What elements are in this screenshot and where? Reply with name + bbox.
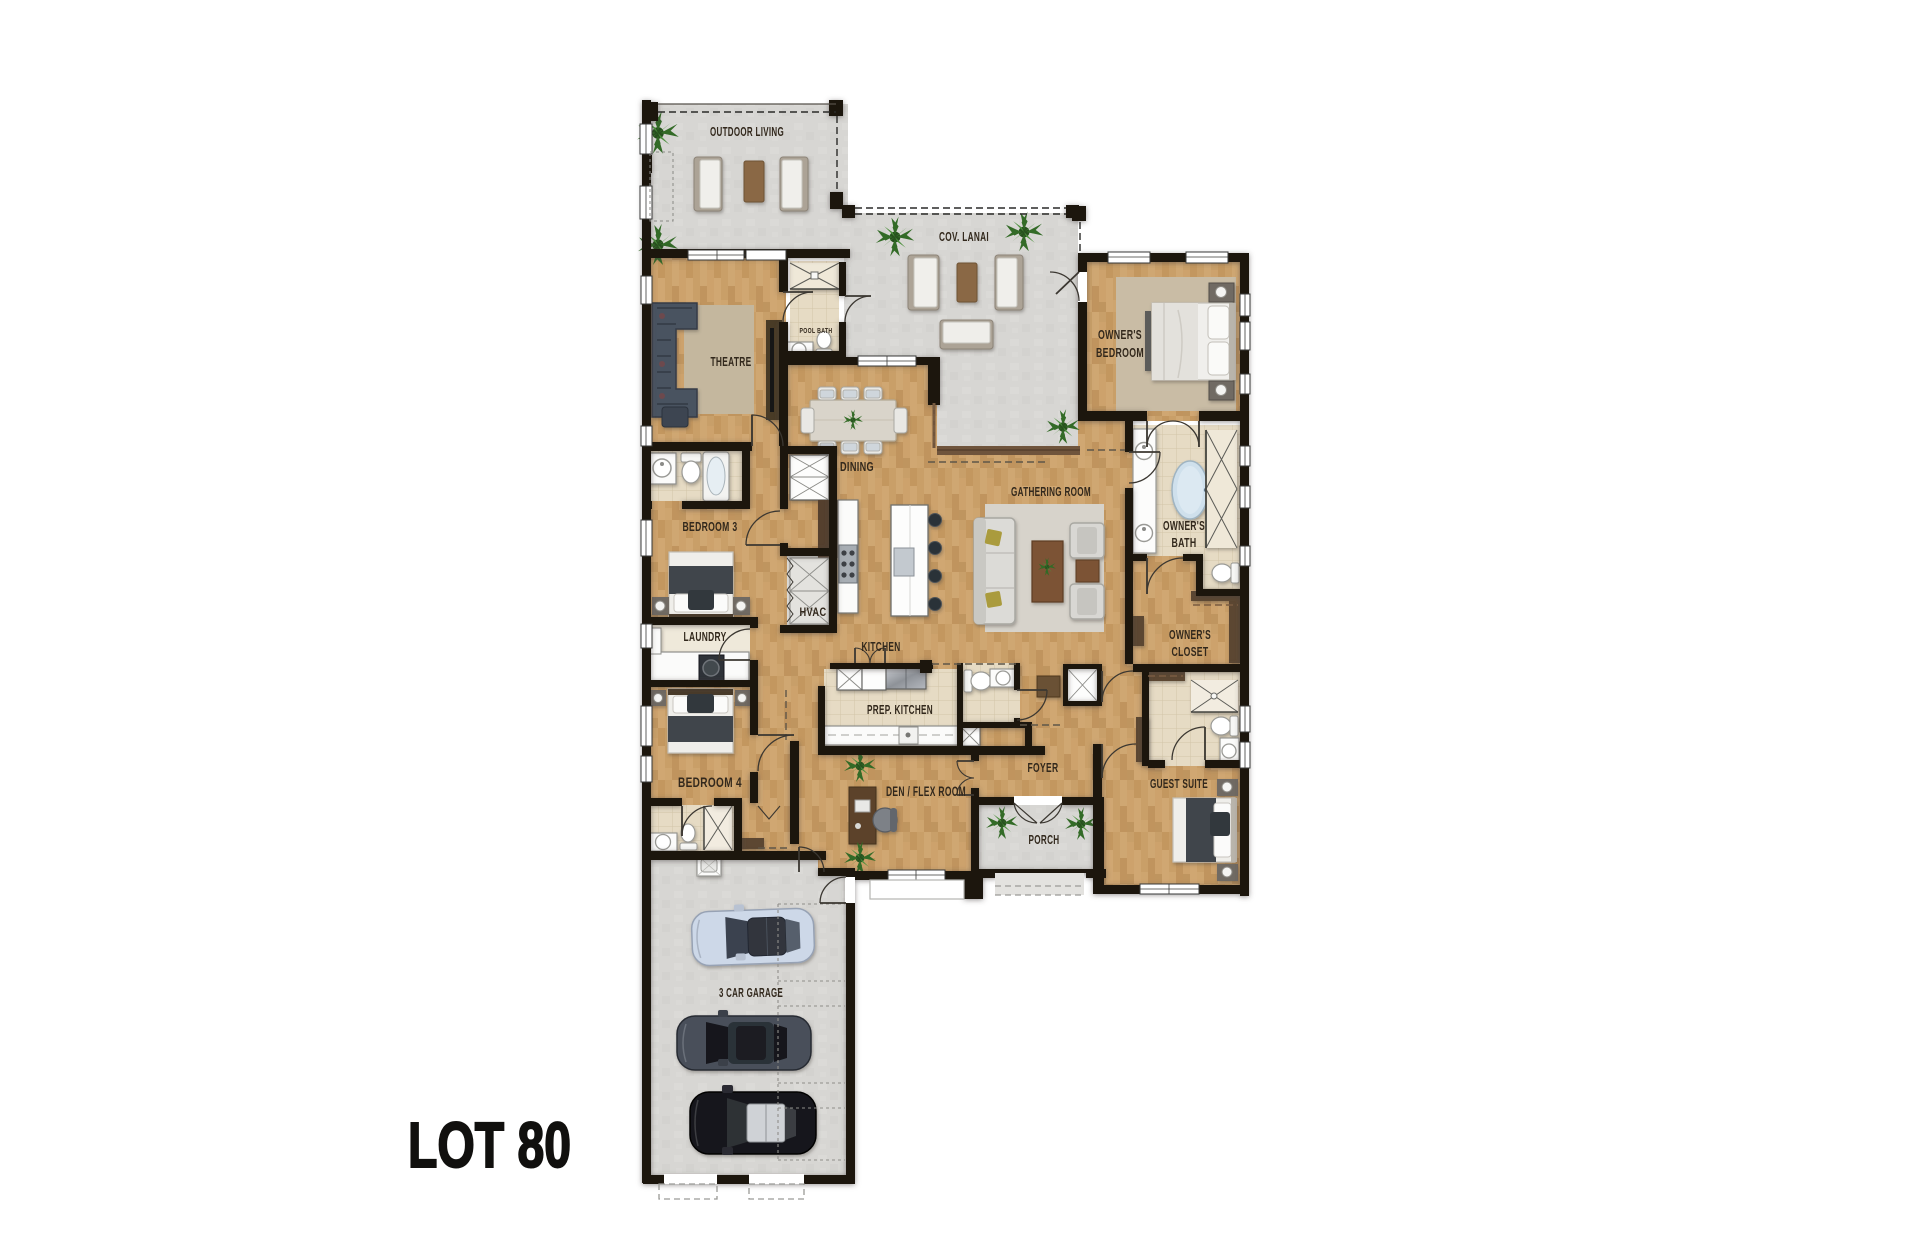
svg-text:LAUNDRY: LAUNDRY xyxy=(684,629,727,644)
svg-text:HVAC: HVAC xyxy=(800,605,827,619)
svg-text:BEDROOM 3: BEDROOM 3 xyxy=(683,519,738,534)
svg-text:COV. LANAI: COV. LANAI xyxy=(939,229,989,244)
svg-text:PREP. KITCHEN: PREP. KITCHEN xyxy=(867,702,933,717)
svg-text:LOT 80: LOT 80 xyxy=(408,1109,571,1181)
svg-text:GATHERING ROOM: GATHERING ROOM xyxy=(1011,484,1091,499)
svg-text:OWNER'S: OWNER'S xyxy=(1163,518,1205,533)
svg-text:OWNER'S: OWNER'S xyxy=(1169,627,1211,642)
svg-text:THEATRE: THEATRE xyxy=(711,354,752,369)
svg-text:FOYER: FOYER xyxy=(1028,760,1059,775)
svg-text:DEN / FLEX ROOM: DEN / FLEX ROOM xyxy=(886,783,966,799)
svg-text:DINING: DINING xyxy=(840,459,874,474)
svg-text:OUTDOOR LIVING: OUTDOOR LIVING xyxy=(710,124,784,139)
svg-text:OWNER'S: OWNER'S xyxy=(1098,327,1142,342)
svg-text:BEDROOM: BEDROOM xyxy=(1096,345,1144,360)
svg-text:GUEST SUITE: GUEST SUITE xyxy=(1150,776,1208,791)
svg-text:BATH: BATH xyxy=(1172,535,1197,550)
svg-text:BEDROOM 4: BEDROOM 4 xyxy=(678,774,742,790)
svg-text:KITCHEN: KITCHEN xyxy=(862,639,901,654)
svg-text:3 CAR GARAGE: 3 CAR GARAGE xyxy=(719,985,783,1000)
svg-text:PORCH: PORCH xyxy=(1029,832,1060,847)
svg-text:POOL BATH: POOL BATH xyxy=(800,326,833,335)
svg-text:CLOSET: CLOSET xyxy=(1172,644,1209,659)
